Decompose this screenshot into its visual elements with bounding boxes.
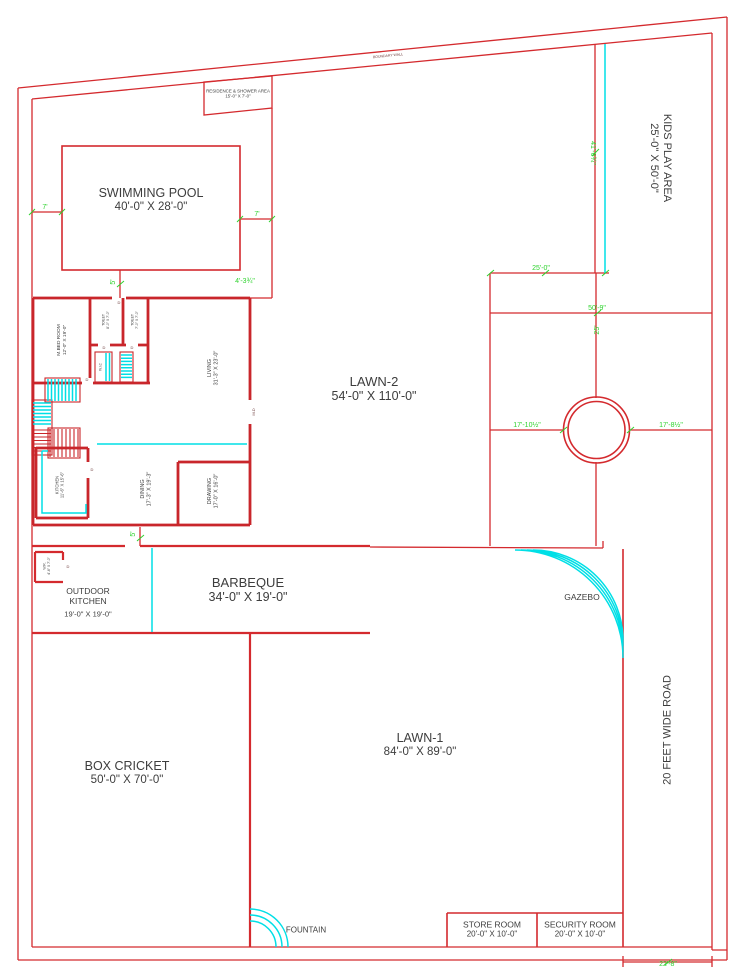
room-dims: 8'-0" X 7'-0"	[106, 311, 110, 329]
wr-label: W.R. 4'-6" X 7'-0"	[43, 557, 51, 575]
residence-shower-label: RESIDENCE & SHOWER AREA 15'-0" X 7'-0"	[206, 89, 270, 99]
barbeque-label: BARBEQUE 34'-0" X 19'-0"	[209, 575, 288, 605]
room-name: DRAWING	[207, 474, 213, 509]
room-dims: 84'-0" X 89'-0"	[384, 746, 457, 760]
room-dims: 4'-6" X 7'-0"	[47, 557, 51, 575]
dim-pool-left: 7'	[42, 204, 47, 212]
dim-cross-width: 50'-9"	[588, 305, 606, 313]
room-dims: 12'-0" X 19'-0"	[62, 324, 68, 355]
layout-lines	[32, 44, 712, 967]
dim-pool-right: 7'	[254, 211, 259, 219]
dining-label: DINING 17'-3" X 19'-3"	[140, 472, 153, 507]
wic-hatch	[106, 353, 110, 381]
room-dims: 17'-0" X 16'-0"	[213, 474, 219, 509]
stair-treads-red-b	[50, 429, 78, 457]
room-dims: 20'-0" X 10'-0"	[544, 929, 616, 938]
room-name: SECURITY ROOM	[544, 919, 616, 929]
toilet1-label: TOILET 8'-0" X 7'-0"	[102, 311, 110, 329]
room-dims: 11'-6" X 15'-6"	[60, 472, 65, 498]
dim-cross-offset: 25'	[594, 325, 602, 334]
outdoor-kitchen-label: OUTDOOR KITCHEN	[55, 586, 121, 606]
dim-pool-bottom: 5'	[110, 279, 118, 284]
room-name: LAWN-2	[332, 374, 417, 389]
store-room-label: STORE ROOM 20'-0" X 10'-0"	[463, 919, 521, 938]
room-name: BARBEQUE	[209, 575, 288, 590]
roundabout-circle-outer	[564, 397, 630, 463]
door-mark: D	[91, 468, 94, 473]
roundabout-circle-inner	[568, 402, 625, 459]
wic-label: W.I.C	[99, 363, 103, 371]
room-dims: 25'-0" X 50'-0"	[647, 114, 660, 202]
main-door-label: M.D	[252, 408, 257, 415]
toilet2-label: TOILET 7'-0" X 7'-0"	[131, 311, 139, 329]
drawing-label: DRAWING 17'-0" X 16'-0"	[207, 474, 220, 509]
road-label: 20 FEET WIDE ROAD	[662, 675, 675, 785]
dim-house-opening: 5'	[130, 531, 138, 536]
gazebo-label: GAZEBO	[564, 592, 599, 602]
outdoor-kitchen-dims: 19'-0" X 19'-0"	[64, 611, 111, 620]
dim-kids-width: 25'-0"	[532, 265, 550, 273]
wardrobe-hatch	[121, 355, 132, 377]
cyan-features	[33, 44, 623, 947]
room-dims: 50'-0" X 70'-0"	[85, 774, 170, 788]
room-name: STORE ROOM	[463, 919, 521, 929]
kitchen-label: KITCHEN 11'-6" X 15'-6"	[55, 472, 65, 498]
box-cricket-label: BOX CRICKET 50'-0" X 70'-0"	[85, 759, 170, 787]
room-dims: 7'-0" X 7'-0"	[135, 311, 139, 329]
plot-boundary	[18, 17, 727, 960]
room-dims: 20'-0" X 10'-0"	[463, 929, 521, 938]
dim-circle-left: 17'-10½"	[513, 422, 541, 430]
door-mark: D	[103, 346, 106, 351]
room-dims: 34'-0" X 19'-0"	[209, 590, 288, 605]
stair-treads-cyan-a	[48, 379, 76, 401]
living-label: LIVING 31'-3" X 23'-0"	[207, 351, 220, 386]
swimming-pool-label: SWIMMING POOL 40'-0" X 28'-0"	[99, 186, 204, 214]
room-dims: 15'-0" X 7'-0"	[206, 94, 270, 99]
room-dims: 17'-3" X 19'-3"	[146, 472, 152, 507]
plan-drawing	[0, 0, 750, 976]
room-dims: 40'-0" X 28'-0"	[99, 201, 204, 215]
dim-pool-offset: 4'-3¾"	[235, 278, 255, 286]
door-mark: D	[67, 565, 70, 570]
room-name: SWIMMING POOL	[99, 186, 204, 201]
stair-treads-cyan-b	[33, 403, 51, 424]
room-name: LAWN-1	[384, 731, 457, 746]
kids-play-label: KIDS PLAY AREA 25'-0" X 50'-0"	[647, 114, 673, 202]
room-name: BOX CRICKET	[85, 759, 170, 774]
room-name: KIDS PLAY AREA	[660, 114, 673, 202]
garden-walls	[32, 546, 370, 947]
stair-flight-3	[48, 428, 80, 458]
fountain-label: FOUNTAIN	[286, 925, 326, 934]
fountain-arcs	[250, 909, 288, 947]
door-mark: D	[118, 301, 121, 306]
m-bedroom-label: M.BED ROOM 12'-0" X 19'-0"	[56, 324, 67, 355]
room-dims: 31'-3" X 23'-0"	[213, 351, 219, 386]
lawn1-label: LAWN-1 84'-0" X 89'-0"	[384, 731, 457, 759]
gazebo-arcs	[515, 550, 623, 658]
dim-circle-right: 17'-8½"	[659, 422, 683, 430]
house-fixtures	[32, 352, 133, 458]
site-plan-canvas: BOUNDARY WALL RESIDENCE & SHOWER AREA 15…	[0, 0, 750, 976]
security-room-label: SECURITY ROOM 20'-0" X 10'-0"	[544, 919, 616, 938]
dim-kids-height: 41'-6¾"	[588, 141, 596, 165]
room-dims: 54'-0" X 110'-0"	[332, 389, 417, 404]
dim-plot-bottom: 22'-8"	[659, 961, 677, 969]
door-mark: D	[131, 346, 134, 351]
door-mark: D	[86, 378, 89, 383]
dimension-ticks	[29, 149, 672, 965]
lawn2-label: LAWN-2 54'-0" X 110'-0"	[332, 374, 417, 404]
